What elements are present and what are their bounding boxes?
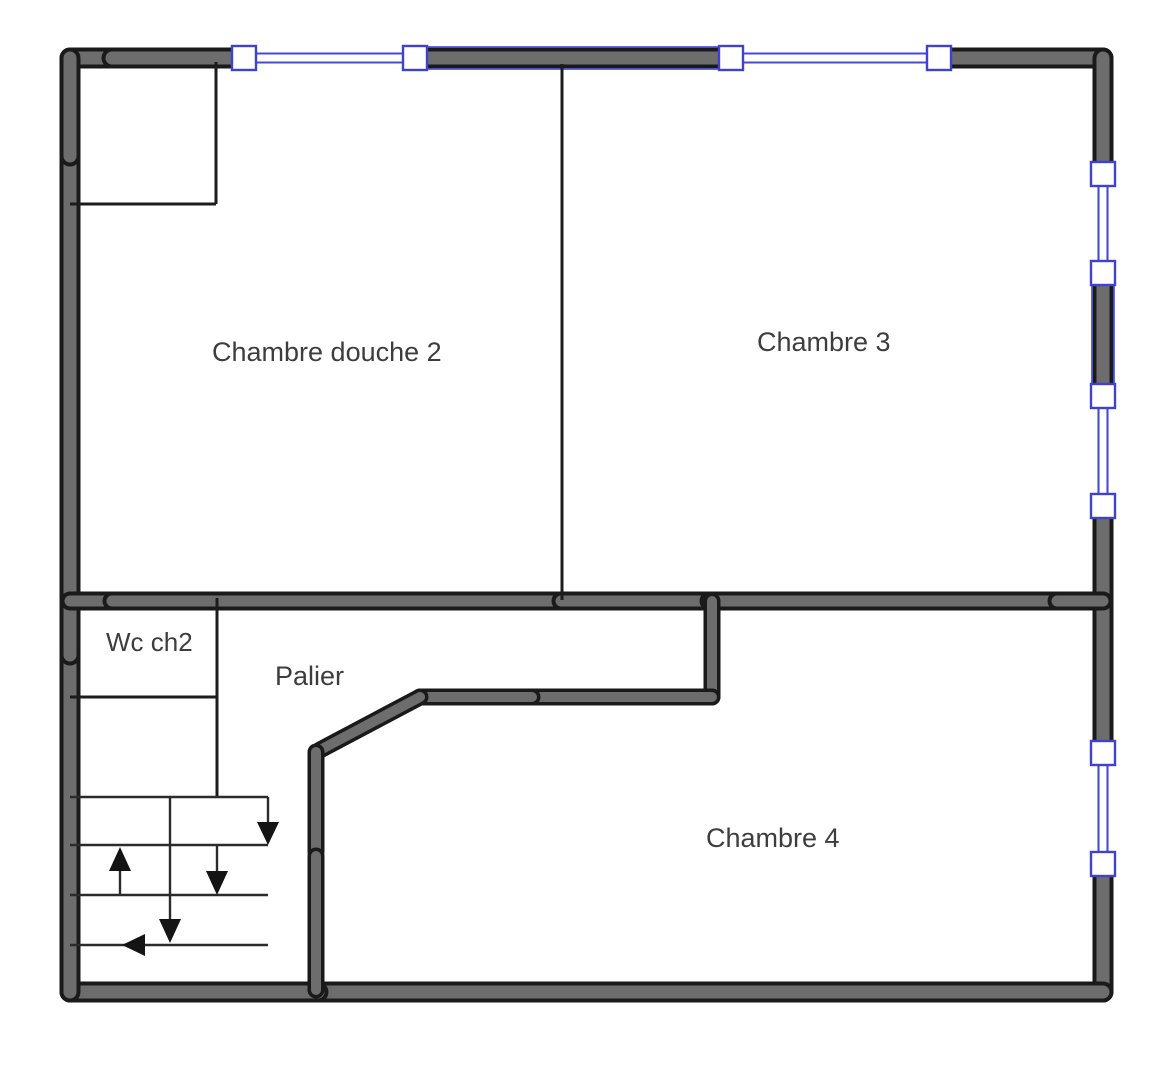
arrow-left-icon bbox=[122, 934, 145, 956]
window-handle[interactable] bbox=[927, 46, 951, 70]
window-handle[interactable] bbox=[403, 46, 427, 70]
room-label-chambre-douche-2: Chambre douche 2 bbox=[212, 337, 442, 367]
room-label-wc-ch2: Wc ch2 bbox=[106, 627, 193, 657]
arrow-down-icon bbox=[206, 871, 228, 895]
wall-segment-diagonal bbox=[320, 697, 420, 750]
room-label-chambre-4: Chambre 4 bbox=[706, 823, 840, 853]
windows bbox=[232, 46, 1115, 876]
window-handle[interactable] bbox=[1091, 852, 1115, 876]
arrow-down-icon bbox=[257, 822, 279, 845]
room-label-palier: Palier bbox=[275, 661, 344, 691]
arrow-up-icon bbox=[109, 847, 131, 871]
window-handle[interactable] bbox=[232, 46, 256, 70]
floor-plan-drawing: Chambre douche 2 Chambre 3 Wc ch2 Palier… bbox=[0, 0, 1164, 1080]
window-handle[interactable] bbox=[1091, 384, 1115, 408]
chambre4-walls bbox=[316, 601, 712, 990]
window-handle[interactable] bbox=[1091, 162, 1115, 186]
window-handle[interactable] bbox=[1091, 261, 1115, 285]
window-handle[interactable] bbox=[1091, 494, 1115, 518]
room-labels: Chambre douche 2 Chambre 3 Wc ch2 Palier… bbox=[106, 327, 891, 853]
staircase bbox=[70, 797, 279, 956]
arrow-down-icon bbox=[159, 919, 181, 943]
window-handle[interactable] bbox=[1091, 741, 1115, 765]
floor-plan-canvas: Chambre douche 2 Chambre 3 Wc ch2 Palier… bbox=[0, 0, 1164, 1080]
room-label-chambre-3: Chambre 3 bbox=[757, 327, 891, 357]
outer-walls bbox=[70, 58, 1103, 992]
window-handle[interactable] bbox=[719, 46, 743, 70]
